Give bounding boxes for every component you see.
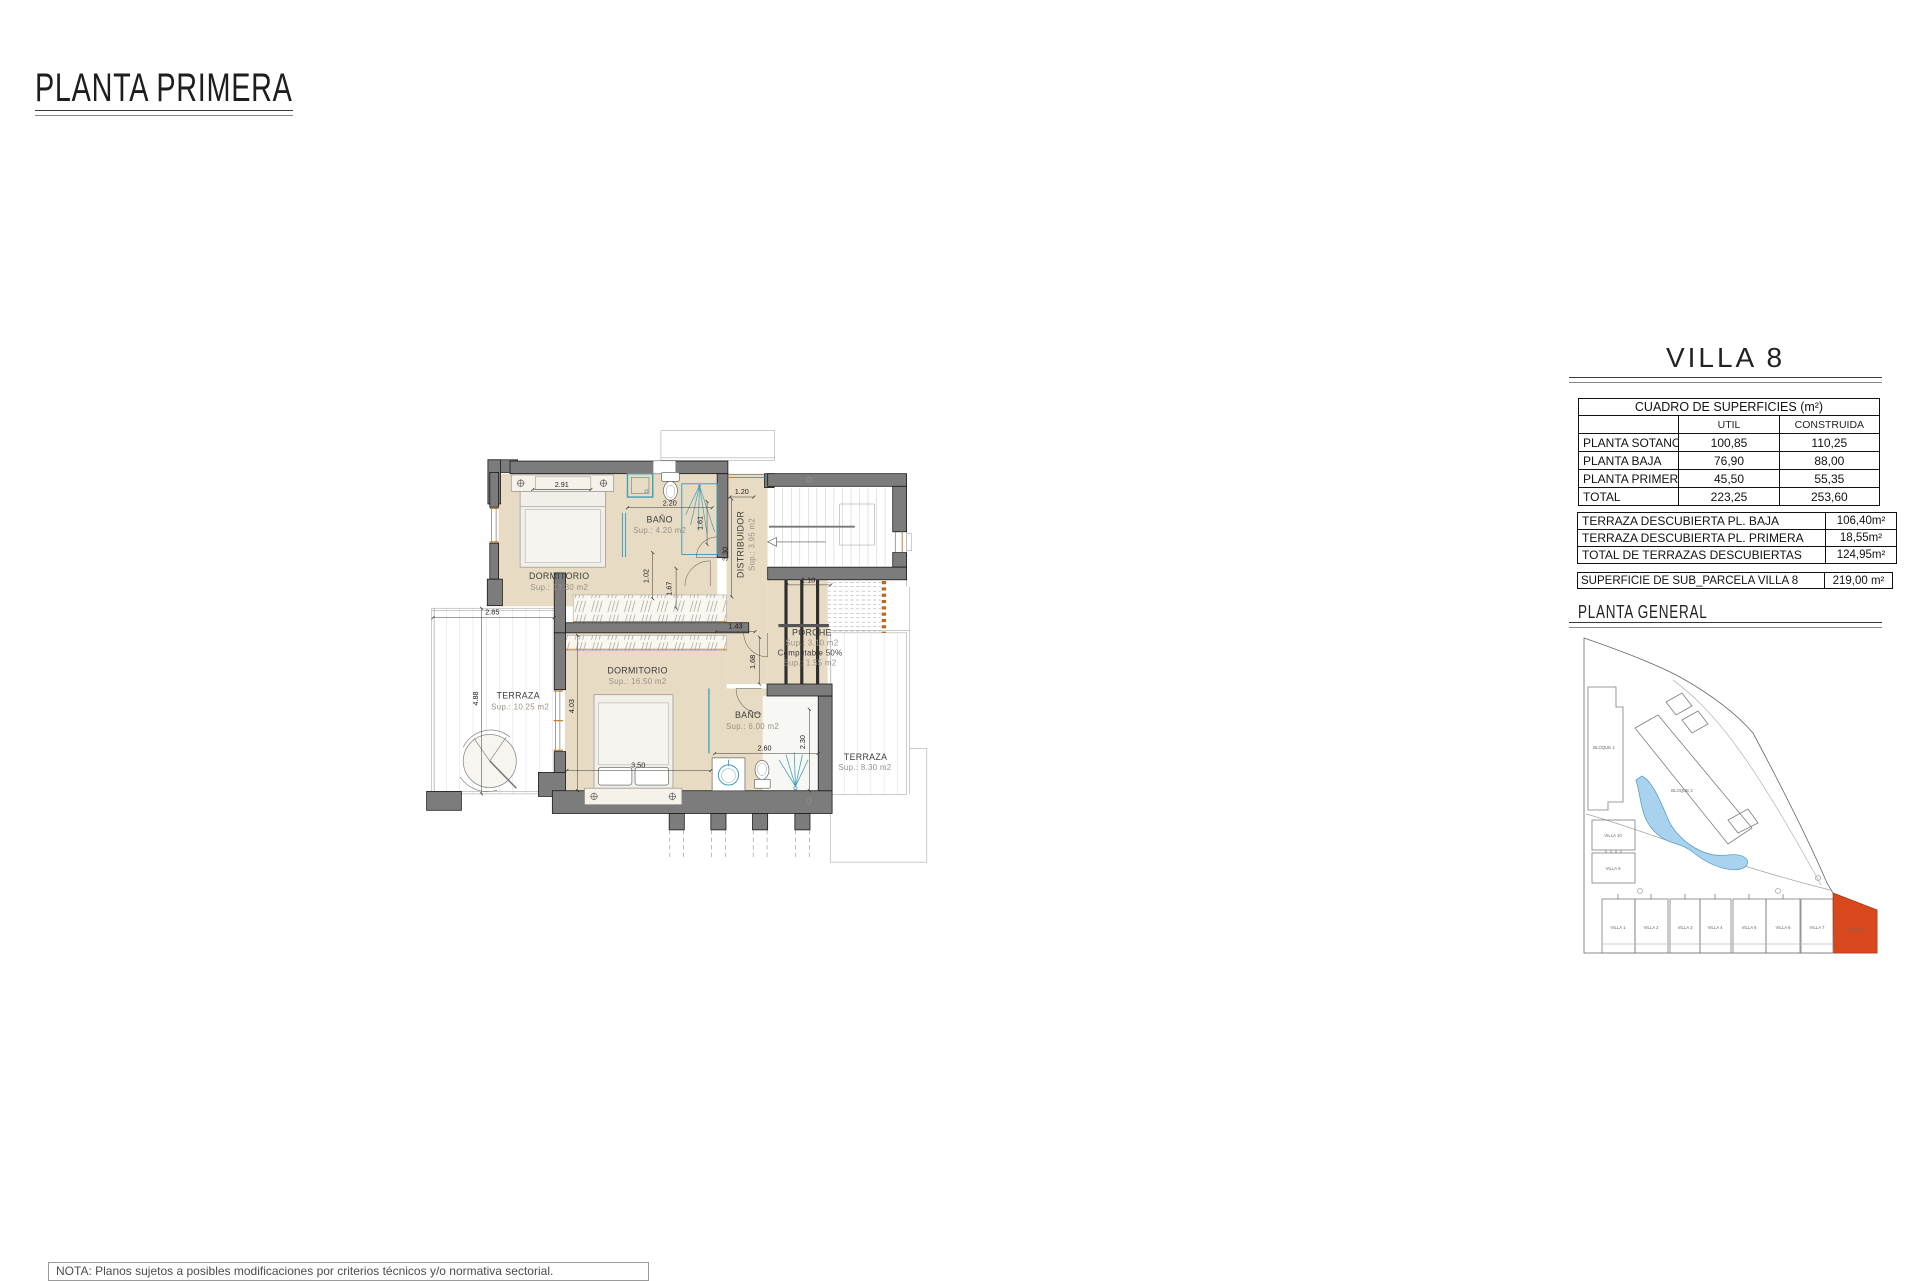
room-label: DORMITORIO: [529, 571, 589, 581]
room-sup: Sup.: 16.50 m2: [609, 677, 667, 686]
villa-title: VILLA 8: [1569, 342, 1882, 374]
room-note: Computable 50%: [778, 649, 843, 658]
row-util: 223,25: [1679, 488, 1779, 506]
site-label: BLOQUE 2: [1671, 788, 1693, 793]
room-label: TERRAZA: [844, 752, 887, 762]
site-label: VILLA 10: [1604, 833, 1622, 838]
room-label: DORMITORIO: [607, 665, 667, 675]
bed-dorm2: [585, 695, 682, 805]
table-row: TERRAZA DESCUBIERTA PL. PRIMERA 18,55m²: [1578, 530, 1897, 547]
row-value: 18,55m²: [1826, 530, 1897, 547]
parcel-table: SUPERFICIE DE SUB_PARCELA VILLA 8 219,00…: [1577, 572, 1893, 589]
page-title: PLANTA PRIMERA: [35, 66, 293, 111]
row-label: PLANTA SOTANO: [1579, 434, 1679, 452]
site-plan-title: PLANTA GENERAL: [1578, 602, 1708, 623]
table-row: PLANTA BAJA 76,90 88,00: [1579, 452, 1880, 470]
site-label: VILLA 1: [1610, 925, 1626, 930]
row-label: TERRAZA DESCUBIERTA PL. PRIMERA: [1578, 530, 1826, 547]
room-label: DISTRIBUIDOR: [736, 511, 746, 578]
room-label: BAÑO: [647, 514, 673, 524]
row-construida: 110,25: [1779, 434, 1879, 452]
floor-plan: DORMITORIO Sup.: 13.30 m2 BAÑO Sup.: 4.2…: [330, 420, 1290, 1140]
row-label: PLANTA PRIMERA: [1579, 470, 1679, 488]
site-label: VILLA 6: [1775, 925, 1791, 930]
dim: 1.68: [748, 655, 757, 669]
row-label: TERRAZA DESCUBIERTA PL. BAJA: [1578, 513, 1826, 530]
row-value: 106,40m²: [1826, 513, 1897, 530]
row-label: TOTAL: [1579, 488, 1679, 506]
col-construida: CONSTRUIDA: [1779, 416, 1879, 434]
dim: 2.20: [663, 498, 677, 507]
site-label: VILLA 3: [1677, 925, 1693, 930]
site-label: VILLA 5: [1741, 925, 1757, 930]
table-row: TERRAZA DESCUBIERTA PL. BAJA 106,40m²: [1578, 513, 1897, 530]
dim: 1.18: [801, 575, 815, 584]
site-villa8-highlight: [1833, 893, 1877, 953]
site-plan: BLOQUE 1 BLOQUE 2 VILLA 10 VILLA 9 VILLA…: [1578, 632, 1888, 962]
footer-note: NOTA: Planos sujetos a posibles modifica…: [48, 1262, 649, 1281]
table-row: SUPERFICIE DE SUB_PARCELA VILLA 8 219,00…: [1578, 573, 1893, 589]
washbasin-bath2: [712, 758, 745, 791]
dim: 1.43: [728, 621, 742, 630]
row-label: SUPERFICIE DE SUB_PARCELA VILLA 8: [1578, 573, 1825, 589]
room-sup: Sup.: 3.10 m2: [785, 638, 838, 647]
dim: 1.20: [735, 487, 749, 496]
table-row: TOTAL DE TERRAZAS DESCUBIERTAS 124,95m²: [1578, 547, 1897, 564]
dim: 3.50: [631, 760, 645, 769]
surfaces-table: CUADRO DE SUPERFICIES (m²) UTIL CONSTRUI…: [1578, 398, 1880, 506]
dim: 1.67: [665, 582, 674, 596]
room-sup: Sup.: 4.20 m2: [633, 526, 686, 535]
site-label: VILLA 9: [1605, 866, 1621, 871]
room-label: PORCHE: [792, 627, 832, 637]
row-util: 76,90: [1679, 452, 1779, 470]
dim: 4.88: [471, 691, 480, 705]
stairwell: [768, 486, 893, 567]
table-row: PLANTA SOTANO 100,85 110,25: [1579, 434, 1880, 452]
room-sup: Sup.: 6.00 m2: [726, 722, 779, 731]
room-sup: Sup.: 13.30 m2: [530, 583, 588, 592]
dim: 4.03: [567, 699, 576, 713]
row-construida: 88,00: [1779, 452, 1879, 470]
table-row: PLANTA PRIMERA 45,50 55,35: [1579, 470, 1880, 488]
site-label: VILLA 2: [1643, 925, 1659, 930]
site-label: VILLA 4: [1707, 925, 1723, 930]
col-util: UTIL: [1679, 416, 1779, 434]
row-value: 124,95m²: [1826, 547, 1897, 564]
dim: 2.85: [485, 608, 499, 617]
site-label: VILLA 8: [1847, 927, 1863, 932]
terraces-table: TERRAZA DESCUBIERTA PL. BAJA 106,40m² TE…: [1577, 512, 1897, 564]
site-label: VILLA 7: [1809, 925, 1825, 930]
roof-outline: [661, 431, 775, 461]
site-plan-underline: [1569, 622, 1882, 628]
dim: 3.30: [720, 547, 729, 561]
surfaces-table-title: CUADRO DE SUPERFICIES (m²): [1579, 399, 1880, 416]
row-label: PLANTA BAJA: [1579, 452, 1679, 470]
row-construida: 55,35: [1779, 470, 1879, 488]
row-util: 100,85: [1679, 434, 1779, 452]
room-label: TERRAZA: [496, 691, 539, 701]
site-label: BLOQUE 1: [1593, 745, 1615, 750]
row-label: TOTAL DE TERRAZAS DESCUBIERTAS: [1578, 547, 1826, 564]
room-sup: Sup.: 10.25 m2: [491, 702, 549, 711]
toilet-bath2: [754, 760, 770, 788]
dim: 2.60: [757, 743, 771, 752]
row-construida: 253,60: [1779, 488, 1879, 506]
dim: 2.91: [555, 480, 569, 489]
row-util: 45,50: [1679, 470, 1779, 488]
pillar-guides: [670, 830, 810, 857]
title-underline: [35, 110, 293, 116]
dim: 1.02: [641, 569, 650, 583]
room-sup: Sup.: 8.30 m2: [838, 763, 891, 772]
room-label: BAÑO: [735, 710, 761, 720]
table-row: TOTAL 223,25 253,60: [1579, 488, 1880, 506]
dim: 2.30: [798, 735, 807, 749]
room-sup: Sup.: 3.95 m2: [747, 518, 756, 571]
pergola-slats: [828, 582, 881, 631]
room-sup: Sup.: 1.55 m2: [783, 659, 836, 668]
row-value: 219,00 m²: [1825, 573, 1893, 589]
dim: 1.61: [696, 516, 705, 530]
villa-underline: [1569, 377, 1882, 383]
porch-beam: [778, 624, 829, 627]
